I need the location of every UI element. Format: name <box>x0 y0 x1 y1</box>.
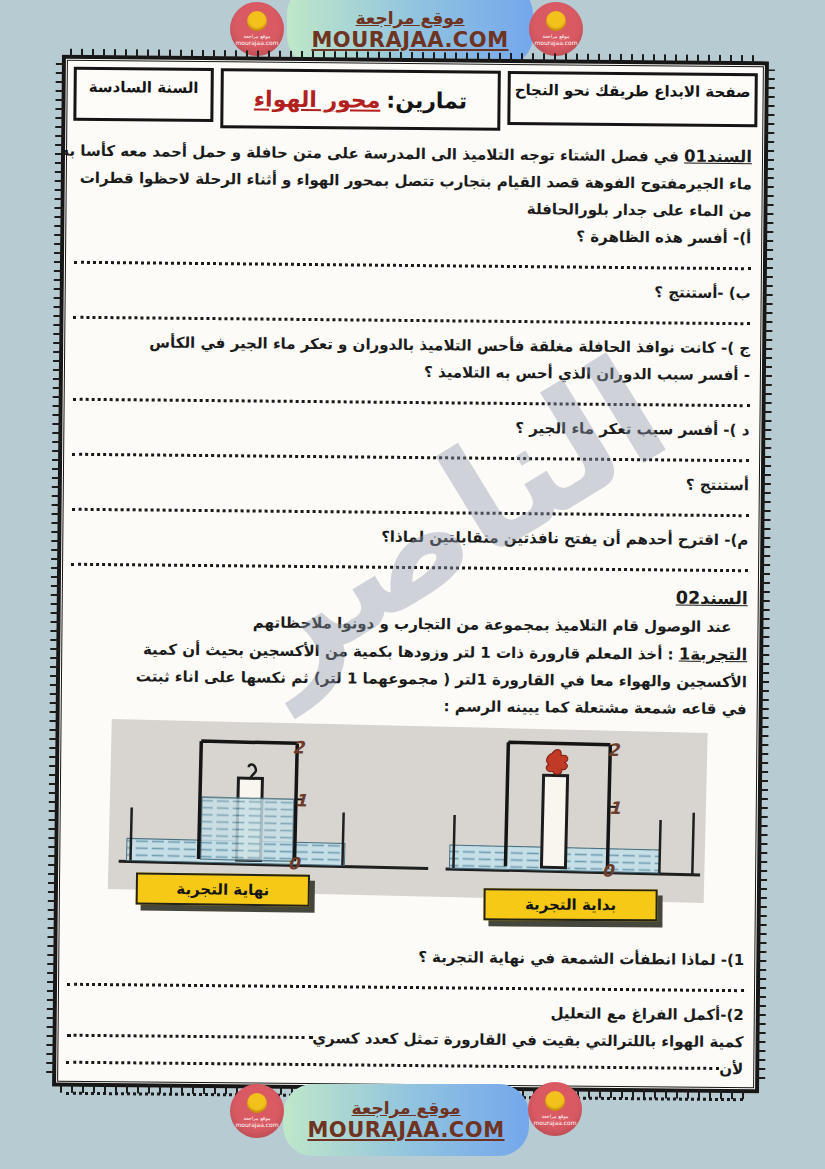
page-stage: موقع مراجعة MOURAJAA.COM موقع مراجعة mou… <box>0 0 825 1169</box>
site-logo-icon: موقع مراجعة mourajaa.com <box>230 2 284 56</box>
scale-mark-2: 2 <box>292 737 305 757</box>
end-experiment-diagram: 2 1 0 <box>118 725 431 882</box>
support1-label: السند01 <box>684 147 752 167</box>
grade-cell: السنة السادسة <box>73 67 214 122</box>
site-logo-icon: موقع مراجعة mourajaa.com <box>528 1082 582 1136</box>
logo-url: mourajaa.com <box>533 1119 576 1126</box>
experiment-figure: 2 1 0 <box>107 719 707 903</box>
experiment1-label: التجربة1 <box>679 645 748 665</box>
motto-cell: صفحة الابداع طريقك نحو النجاح <box>507 71 758 127</box>
because-label: لأن <box>719 1056 743 1083</box>
scale-mark-0: 0 <box>601 861 615 881</box>
answer-blank <box>67 1034 313 1039</box>
smoke-curl-icon <box>248 764 256 778</box>
basin-wall-right <box>659 820 660 873</box>
logo-url: mourajaa.com <box>235 1121 278 1128</box>
experiment1-line2c: ثم نكسها على اناء ثبتت <box>136 667 314 687</box>
answer-blank <box>72 444 749 462</box>
site-url: MOURAJAA.COM <box>307 1118 504 1142</box>
bottom-site-banner: موقع مراجعة MOURAJAA.COM <box>283 1084 529 1156</box>
logo-book-icon <box>546 11 566 31</box>
support1-intro1-text: في فصل الشتاء توجه التلاميذ الى المدرسة … <box>60 142 684 166</box>
experiment1-line3: في قاعه شمعة مشتعلة كما يبينه الرسم : <box>70 690 747 723</box>
scale-mark-0: 0 <box>287 853 301 873</box>
question-f: م)- اقترح أحدهم أن يفتح نافذتين متقابلتي… <box>71 521 748 554</box>
question-a: أ)- أفسر هذه الظاهرة ؟ <box>74 219 751 252</box>
experiment1-text: : أخذ المعلم قارورة ذات 1 لتر وزودها بكم… <box>143 640 679 663</box>
site-logo-icon: موقع مراجعة mourajaa.com <box>230 1084 284 1138</box>
title-cell: تمارين: محور الهواء <box>220 68 501 131</box>
question-e: أستنتج ؟ <box>72 466 749 499</box>
question-b: ب) -أستنتج ؟ <box>74 274 751 307</box>
site-name-arabic: موقع مراجعة <box>352 1098 461 1118</box>
logo-book-icon <box>247 1093 267 1113</box>
water-risen-in-jar <box>200 797 293 861</box>
end-of-experiment-label: نهاية التجربة <box>135 873 309 907</box>
answer-blank <box>73 307 750 325</box>
site-url: MOURAJAA.COM <box>311 28 508 52</box>
answer-blank <box>74 252 751 270</box>
question-1: 1)- لماذا انطفأت الشمعة في نهاية التجربة… <box>67 941 744 974</box>
site-name-arabic: موقع مراجعة <box>356 8 465 28</box>
start-experiment-diagram: 2 1 0 <box>445 729 704 887</box>
basin-wall-left <box>453 815 454 868</box>
scale-mark-1: 1 <box>608 798 620 818</box>
site-logo-icon: موقع مراجعة mourajaa.com <box>529 2 583 56</box>
answer-blank <box>73 389 750 407</box>
outer-wall-right <box>692 813 693 875</box>
logo-url: mourajaa.com <box>534 39 577 46</box>
answer-blank <box>72 499 749 517</box>
worksheet-header: السنة السادسة تمارين: محور الهواء صفحة ا… <box>73 67 758 134</box>
start-of-experiment-label: بداية التجربة <box>483 888 657 921</box>
title-prefix: تمارين: <box>386 87 467 113</box>
answer-blank <box>67 974 744 992</box>
worksheet-body: السند01 في فصل الشتاء توجه التلاميذ الى … <box>56 135 764 1133</box>
top-site-banner: موقع مراجعة MOURAJAA.COM <box>287 0 533 66</box>
question-d: د )- أفسر سبب تعكر ماء الجير ؟ <box>72 411 749 444</box>
fill-stem: كمية الهواء باللترالتي بقيت في القارورة … <box>312 1025 743 1056</box>
logo-book-icon <box>247 11 267 31</box>
experiment1-line2b: ( مجموعهما 1 لتر) <box>314 669 450 688</box>
experiment1-line2a: الأكسجين والهواء معا في القارورة 1لتر <box>450 670 747 691</box>
answer-blank <box>71 554 748 572</box>
logo-url: mourajaa.com <box>235 39 278 46</box>
scale-mark-2: 2 <box>607 740 620 760</box>
title-topic: محور الهواء <box>254 86 381 112</box>
answer-blank <box>66 1061 719 1070</box>
question-c-line2: - أفسر سبب الدوران الذي أحس به التلاميذ … <box>73 356 750 389</box>
worksheet-page: السنة السادسة تمارين: محور الهواء صفحة ا… <box>52 55 769 1094</box>
basin-wall-left <box>130 807 131 860</box>
basin-wall-right <box>342 812 343 865</box>
scale-mark-1: 1 <box>294 790 306 810</box>
candle <box>541 775 567 868</box>
logo-book-icon <box>545 1091 565 1111</box>
flame-icon <box>546 749 568 774</box>
